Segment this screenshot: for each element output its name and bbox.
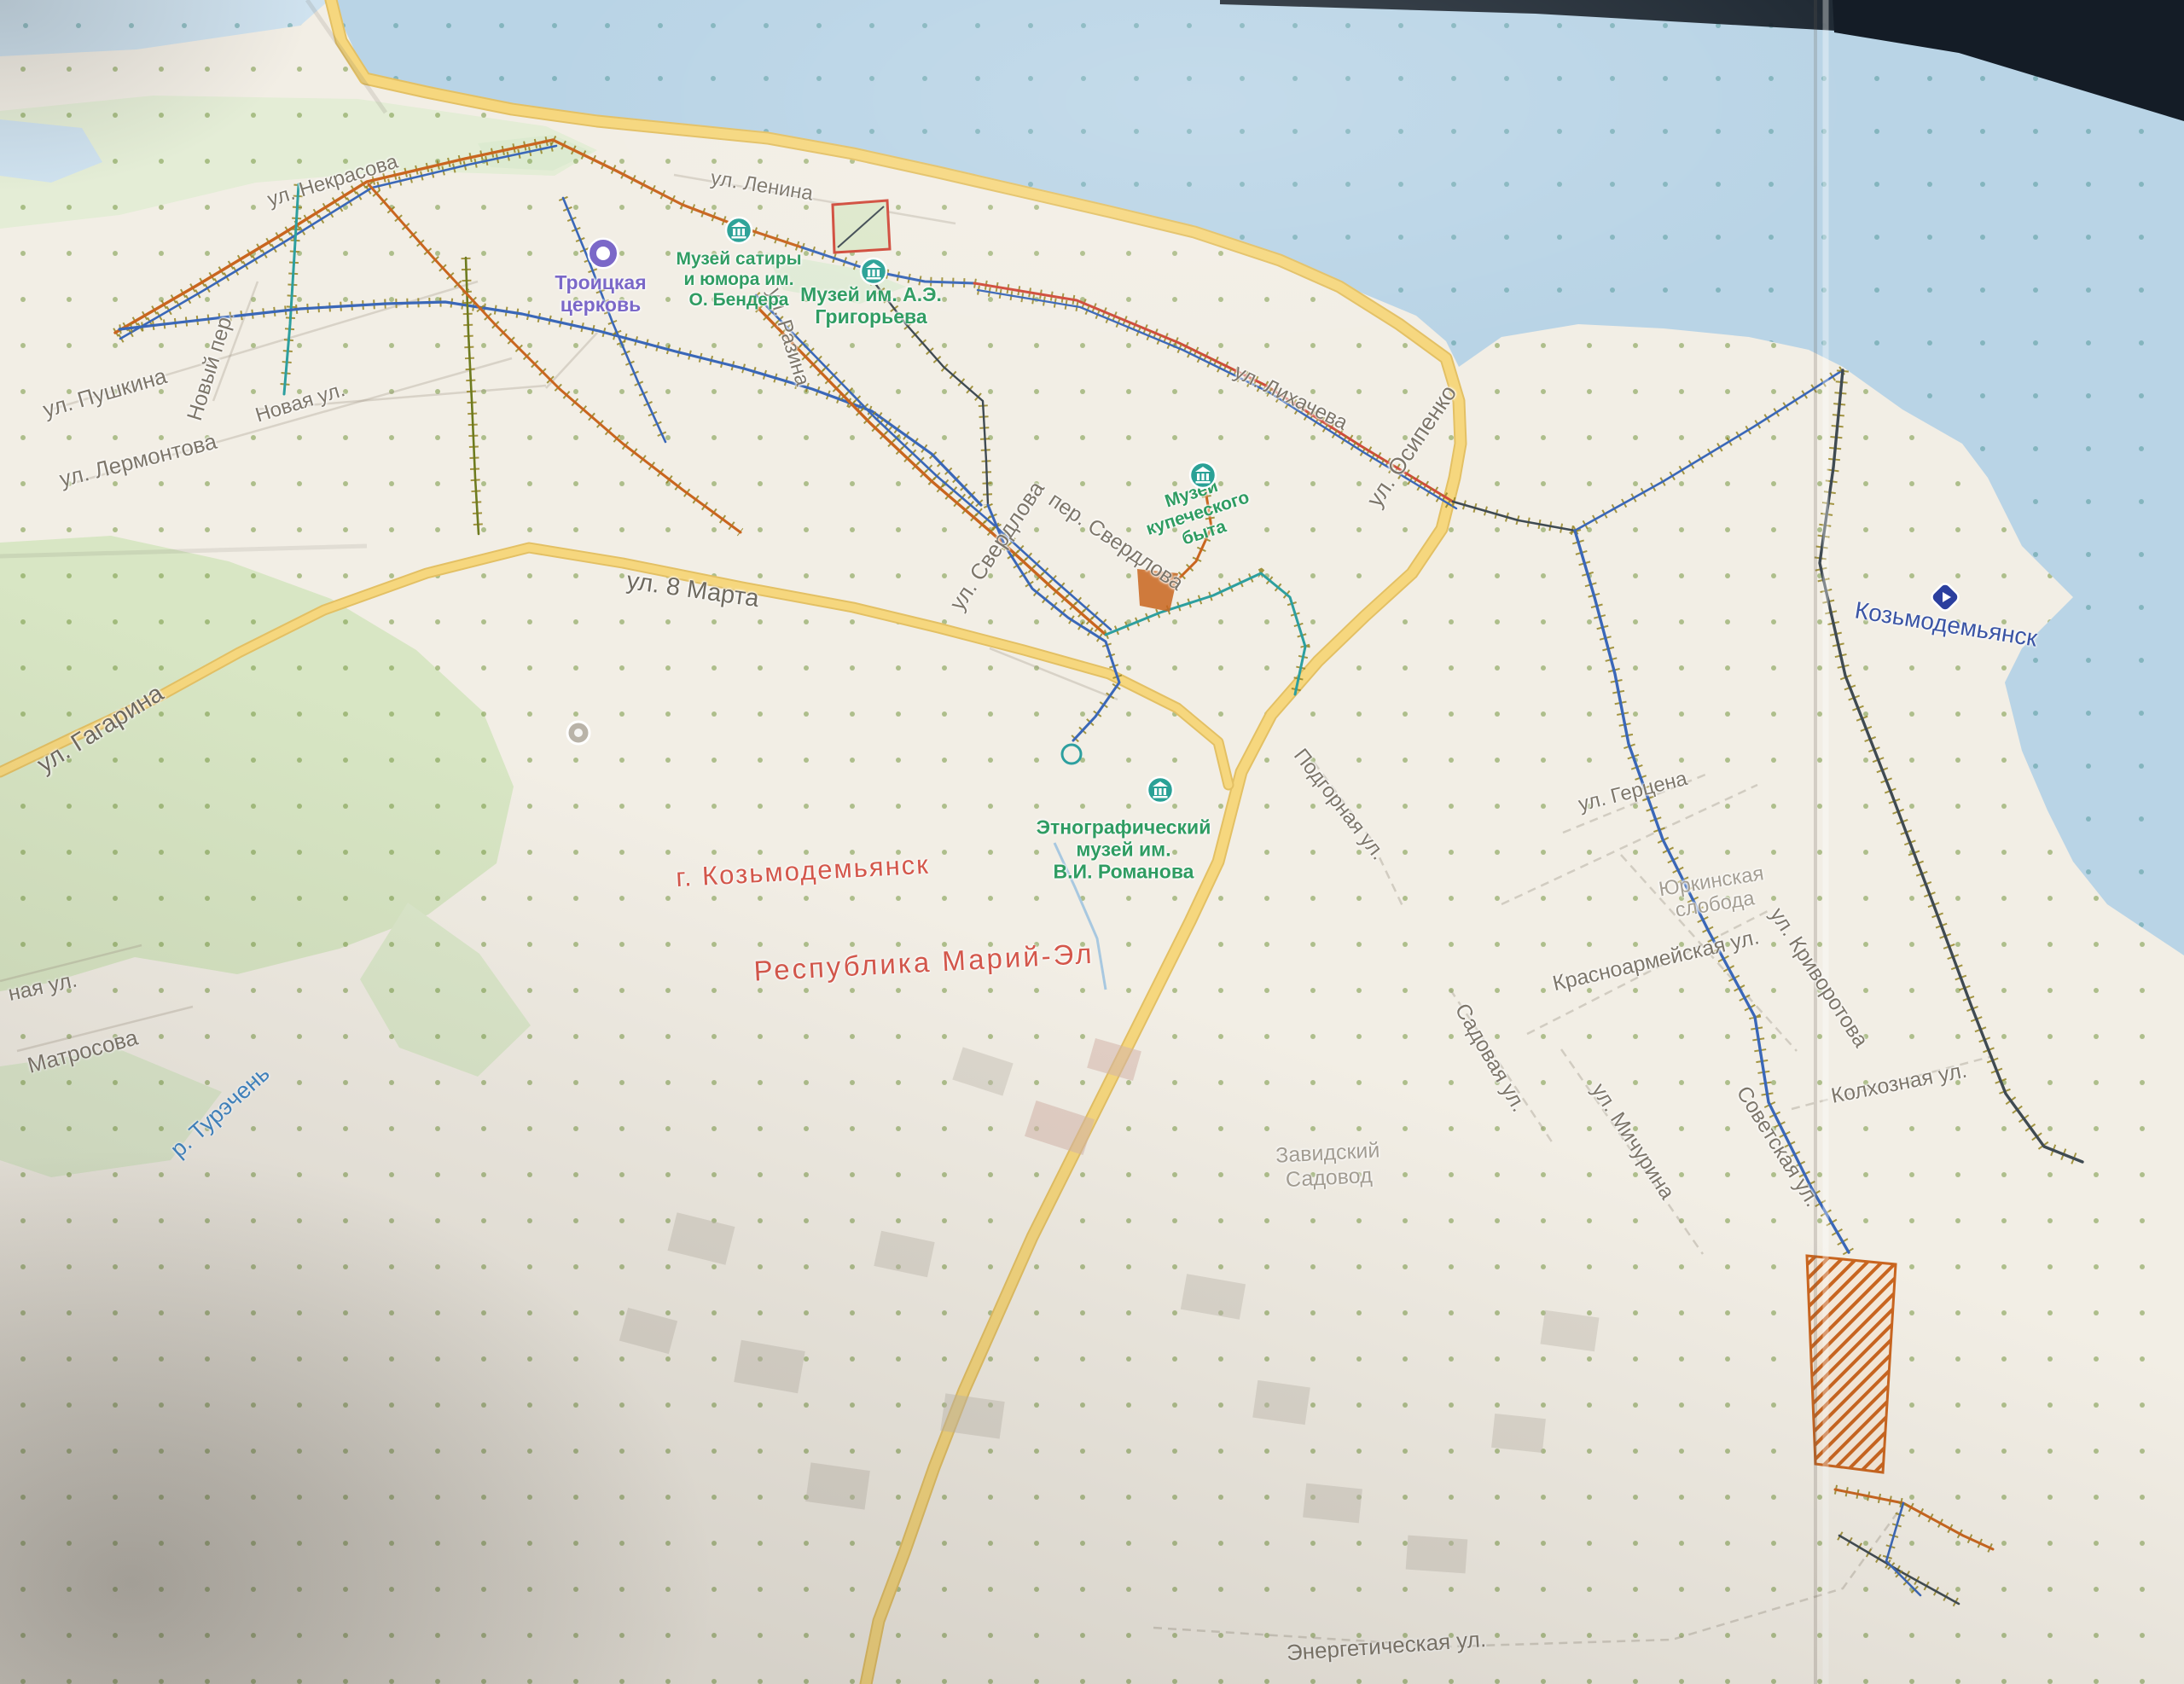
museum-marker-grigoriev xyxy=(861,258,886,284)
map-markers-layer xyxy=(0,0,2184,1684)
church-marker xyxy=(589,239,618,268)
poi-marker-generic xyxy=(567,722,590,744)
printed-map-photo: ул. Ленинаул. Некрасоваул. Пушкинаул. Ле… xyxy=(0,0,2184,1684)
museum-marker-ethnographic xyxy=(1147,777,1173,803)
museum-marker-bender xyxy=(726,218,752,243)
pier-marker xyxy=(1930,582,1961,613)
museum-marker-merchant xyxy=(1190,462,1216,488)
